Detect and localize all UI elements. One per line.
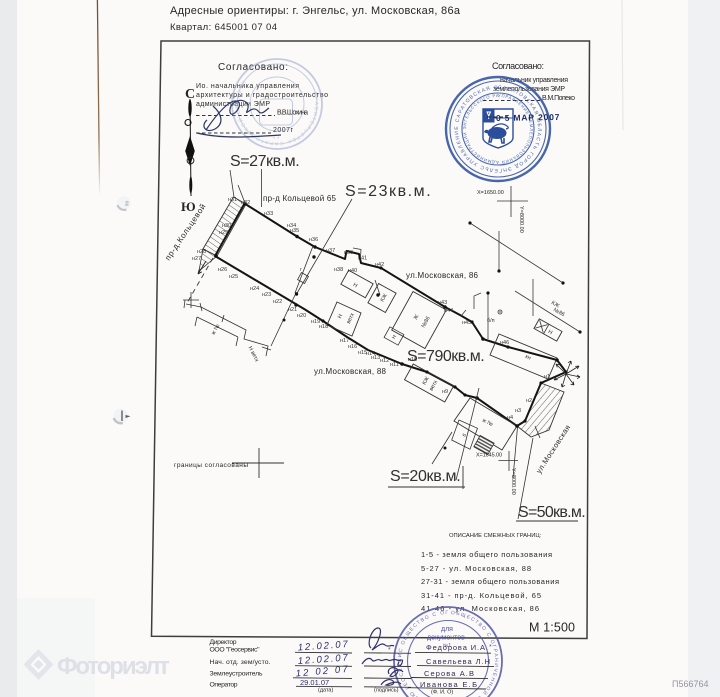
svg-text:н26: н26: [218, 267, 227, 273]
svg-text:н42: н42: [375, 262, 384, 268]
svg-text:н43: н43: [438, 300, 447, 306]
svg-text:н11: н11: [390, 362, 399, 368]
svg-text:н24: н24: [250, 286, 259, 292]
svg-text:н39: н39: [344, 250, 353, 256]
svg-text:0 5 МАР 2007: 0 5 МАР 2007: [496, 112, 560, 123]
svg-text:Y=8000.00: Y=8000.00: [518, 206, 524, 233]
svg-text:ул.Московская, 88: ул.Московская, 88: [314, 367, 387, 376]
svg-text:X=1645.00: X=1645.00: [476, 453, 502, 459]
svg-text:31-41 - пр-д. Кольцевой, 65: 31-41 - пр-д. Кольцевой, 65: [421, 591, 541, 600]
svg-text:для: для: [441, 626, 453, 633]
svg-text:н28: н28: [197, 249, 206, 255]
svg-text:S=27кв.м.: S=27кв.м.: [230, 153, 300, 170]
svg-text:Фоториэлт: Фоториэлт: [57, 653, 170, 680]
svg-text:н32: н32: [241, 200, 250, 206]
svg-text:н33: н33: [264, 211, 273, 217]
svg-text:г: г: [300, 267, 302, 273]
svg-text:н2: н2: [526, 398, 532, 404]
svg-text:н38: н38: [334, 267, 343, 273]
svg-text:5-27 - ул. Московская, 88: 5-27 - ул. Московская, 88: [421, 564, 531, 573]
svg-text:В.М.Попеко: В.М.Попеко: [542, 95, 575, 102]
svg-text:н9: н9: [442, 389, 448, 395]
svg-text:Квартал: 645001 07 04: Квартал: 645001 07 04: [170, 22, 277, 33]
svg-text:(подпись): (подпись): [374, 688, 399, 694]
svg-text:ул.Московская, 86: ул.Московская, 86: [406, 271, 479, 280]
svg-text:29.01.07: 29.01.07: [300, 678, 329, 687]
svg-text:н30: н30: [222, 223, 231, 229]
svg-text:1-5 - земля общего пользования: 1-5 - земля общего пользования: [421, 550, 552, 559]
svg-text:Иванова Е.Б: Иванова Е.Б: [420, 680, 477, 689]
svg-text:н22: н22: [273, 299, 282, 305]
svg-text:Савельева Л.Н: Савельева Л.Н: [426, 657, 490, 666]
svg-text:ООО "Геосервис": ООО "Геосервис": [210, 647, 261, 654]
svg-text:н4: н4: [507, 415, 513, 421]
svg-text:П566764: П566764: [672, 679, 709, 689]
svg-text:н36: н36: [309, 237, 318, 243]
svg-text:н29: н29: [219, 230, 228, 236]
svg-text:н25: н25: [229, 274, 238, 280]
svg-text:н12: н12: [380, 358, 389, 364]
svg-text:(Ф. И. О): (Ф. И. О): [431, 690, 453, 696]
svg-text:б/п: б/п: [487, 318, 495, 324]
svg-text:н41: н41: [358, 256, 367, 262]
svg-text:Землеустроитель: Землеустроитель: [210, 671, 263, 678]
svg-text:(дата): (дата): [318, 688, 333, 694]
svg-text:н18: н18: [319, 324, 328, 330]
svg-text:по: по: [125, 201, 131, 207]
svg-text:S=20кв.м.: S=20кв.м.: [390, 468, 461, 485]
svg-text:документов: документов: [427, 635, 465, 642]
svg-text:н31: н31: [228, 197, 237, 203]
svg-text:н20: н20: [297, 313, 306, 319]
svg-text:н27: н27: [192, 256, 201, 262]
svg-text:X=1650.00: X=1650.00: [477, 190, 504, 196]
svg-text:27-31 - земля общего пользован: 27-31 - земля общего пользования: [421, 577, 559, 586]
svg-text:н45: н45: [462, 320, 471, 326]
svg-text:Согласовано:: Согласовано:: [492, 61, 544, 71]
svg-text:Нач. отд. зем/усто.: Нач. отд. зем/усто.: [210, 659, 271, 666]
svg-text:ОПИСАНИЕ СМЕЖНЫХ ГРАНИЦ:: ОПИСАНИЕ СМЕЖНЫХ ГРАНИЦ:: [449, 533, 542, 539]
svg-text:Y=8000.00: Y=8000.00: [510, 468, 516, 495]
svg-text:* *: * *: [273, 137, 280, 143]
svg-text:S=50кв.м.: S=50кв.м.: [518, 504, 586, 521]
svg-text:Серова А.В: Серова А.В: [424, 669, 474, 678]
svg-text:н37: н37: [326, 248, 335, 254]
svg-text:н16: н16: [348, 344, 357, 350]
svg-text:Оператор: Оператор: [210, 682, 238, 689]
svg-text:*: *: [489, 644, 492, 651]
svg-text:н35: н35: [290, 228, 299, 234]
svg-text:н46: н46: [500, 340, 509, 346]
svg-text:Федорова И.А.: Федорова И.А.: [426, 643, 488, 652]
svg-text:М 1:500: М 1:500: [529, 621, 575, 635]
svg-text:н13: н13: [371, 355, 380, 361]
svg-text:н21: н21: [288, 307, 297, 313]
svg-text:н3: н3: [515, 408, 521, 414]
svg-text:архитектуры и градостроительст: архитектуры и градостроительство: [196, 92, 328, 99]
svg-text:Ио. начальника управления: Ио. начальника управления: [196, 83, 299, 90]
svg-text:Директор: Директор: [210, 639, 237, 646]
svg-text:S=790кв.м.: S=790кв.м.: [407, 348, 485, 365]
svg-text:пр-д Кольцевой 65: пр-д Кольцевой 65: [263, 194, 337, 203]
svg-text:н1: н1: [544, 374, 550, 380]
svg-text:н23: н23: [262, 292, 271, 298]
svg-text:Адресные ориентиры: г. Энгельс: Адресные ориентиры: г. Энгельс, ул. Моск…: [170, 5, 461, 17]
svg-text:н44: н44: [444, 308, 453, 314]
svg-text:н40: н40: [348, 268, 357, 274]
